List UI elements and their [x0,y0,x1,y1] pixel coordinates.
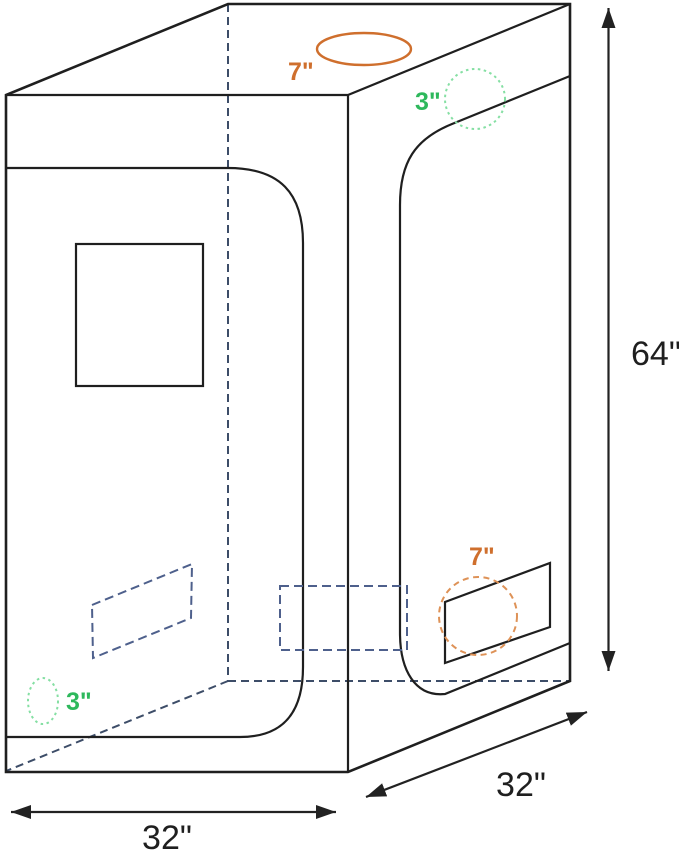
hidden-bottom-left-edge [6,681,228,771]
top-duct-size-label: 7" [288,58,314,86]
height-dimension-label: 64" [631,335,679,373]
side-vent-size-label: 3" [66,688,92,716]
tent-diagram-svg: 7" 3" 64" 7" 3" 32" 32" [0,0,679,851]
side-duct-size-label: 7" [469,543,495,571]
width-dimension-label: 32" [142,819,192,851]
top-vent-size-label: 3" [415,88,441,116]
tent-inner-edges [6,4,570,772]
bottom-left-vent-ellipse [28,678,58,724]
diagram-canvas: 7" 3" 64" 7" 3" 32" 32" [0,0,679,851]
front-door-outline [6,168,303,737]
depth-dimension-arrow [366,712,587,797]
top-vent-circle [445,69,505,129]
front-window [76,244,203,386]
depth-dimension-label: 32" [496,766,546,804]
left-vent-rect [92,564,192,658]
tent-outer-outline [6,4,570,772]
side-door-outline [400,76,570,694]
side-duct-flange [445,563,550,663]
front-vent-rect [280,586,407,650]
top-duct-ellipse [317,33,411,65]
